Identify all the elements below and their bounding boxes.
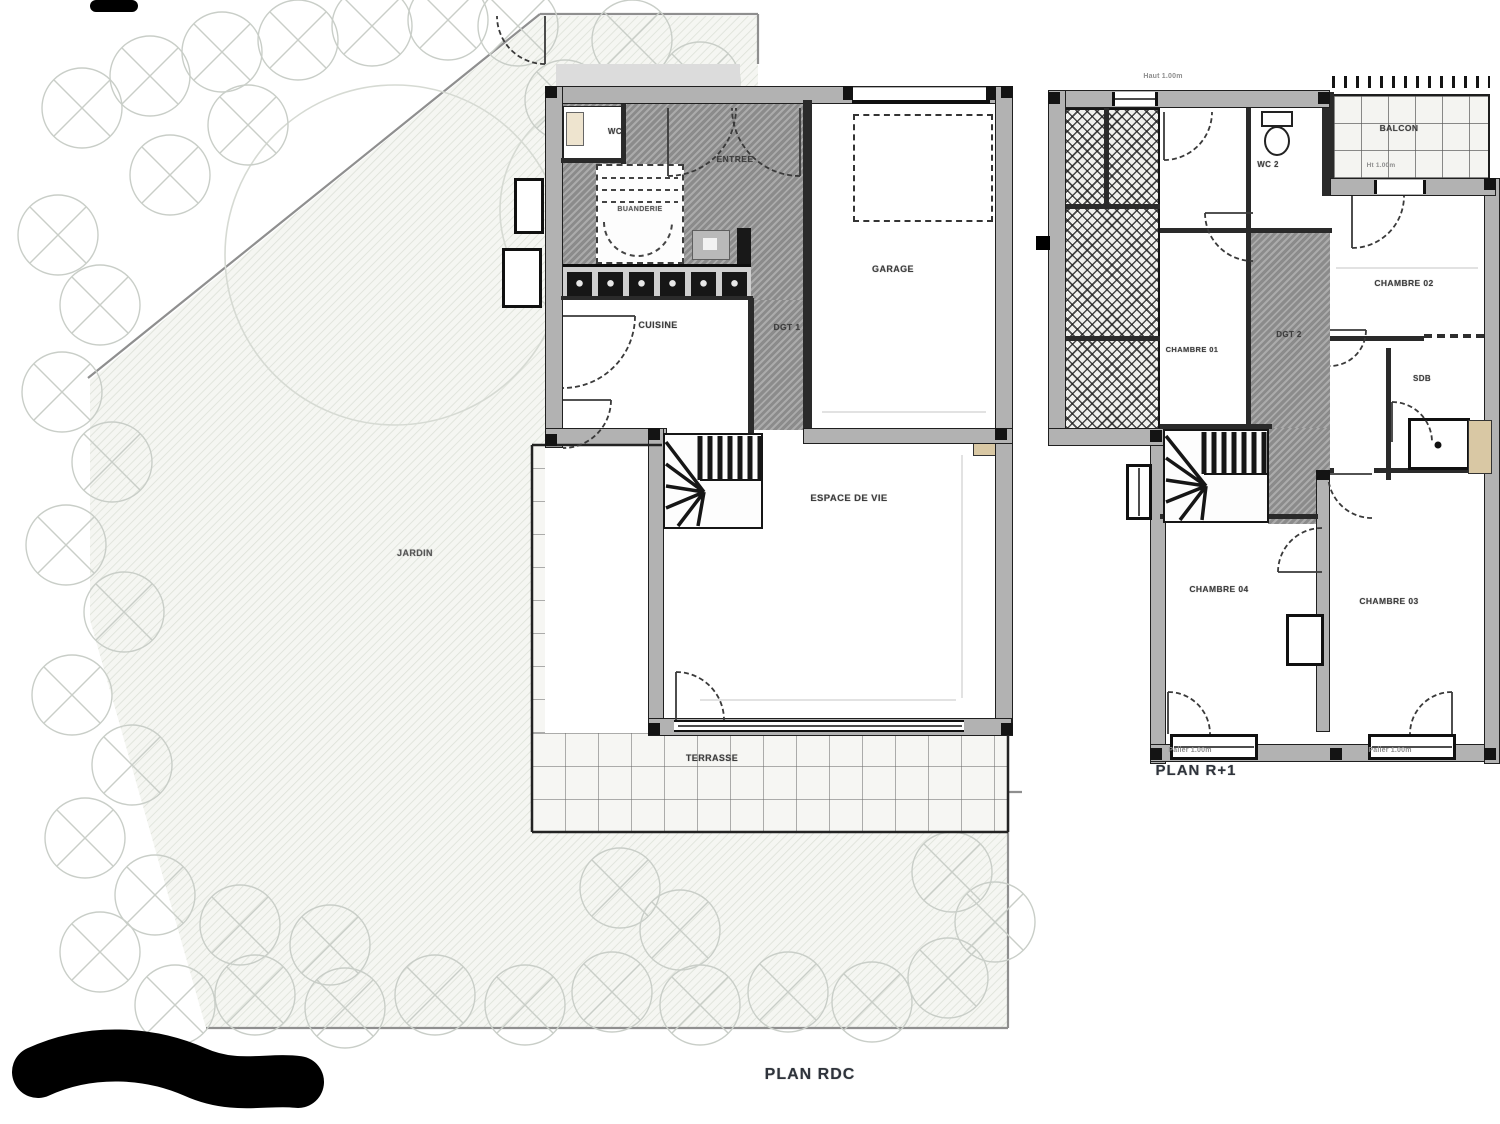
room-label-chambre01: CHAMBRE 01 [1146, 345, 1238, 354]
stairs-rdc [664, 434, 762, 528]
door-swing-arcs [497, 16, 1452, 734]
annotation-sill-right: Palier 1.00m [1340, 747, 1440, 754]
plan-rdc-title: PLAN RDC [750, 1066, 870, 1084]
room-label-entree: ENTREE [695, 154, 775, 164]
room-label-sdb: SDB [1397, 374, 1447, 383]
marker-blob [38, 1055, 298, 1082]
shower-drain [1435, 442, 1442, 449]
room-label-garage: GARAGE [843, 264, 943, 274]
stairs-r1 [1164, 430, 1268, 522]
terrace-edges [532, 445, 1008, 832]
room-label-balcon: BALCON [1354, 123, 1444, 133]
room-label-chambre04: CHAMBRE 04 [1159, 584, 1279, 594]
room-label-dgt2: DGT 2 [1259, 330, 1319, 339]
room-label-wc2: WC 2 [1243, 160, 1293, 169]
buanderie-appliance-dashes [602, 178, 678, 256]
room-label-wc: WC [590, 127, 640, 136]
room-label-chambre03: CHAMBRE 03 [1329, 596, 1449, 606]
room-label-jardin: JARDIN [355, 548, 475, 558]
annotation-balcon-height: Ht 1.00m [1346, 162, 1416, 169]
dimension-lines [700, 268, 1478, 700]
annotation-top-window: Haut 1.00m [1118, 73, 1208, 80]
annotation-sill-left: Palier 1.00m [1140, 747, 1240, 754]
room-label-chambre02: CHAMBRE 02 [1344, 278, 1464, 288]
room-label-cuisine: CUISINE [613, 320, 703, 330]
room-label-buanderie: BUANDERIE [596, 206, 684, 213]
floorplan-sheet: JARDIN TERRASSE WC ENTREE BUANDERIE CUIS… [0, 0, 1500, 1124]
room-label-terrasse: TERRASSE [652, 753, 772, 763]
door-leaves [545, 16, 1452, 734]
wall-jamb-blocks [545, 86, 1496, 760]
plan-r1-title: PLAN R+1 [1136, 762, 1256, 779]
room-label-espace-de-vie: ESPACE DE VIE [779, 493, 919, 504]
toilet-icon [1262, 112, 1292, 155]
room-label-dgt1: DGT 1 [757, 322, 817, 332]
window-mid-lines [678, 99, 1452, 747]
